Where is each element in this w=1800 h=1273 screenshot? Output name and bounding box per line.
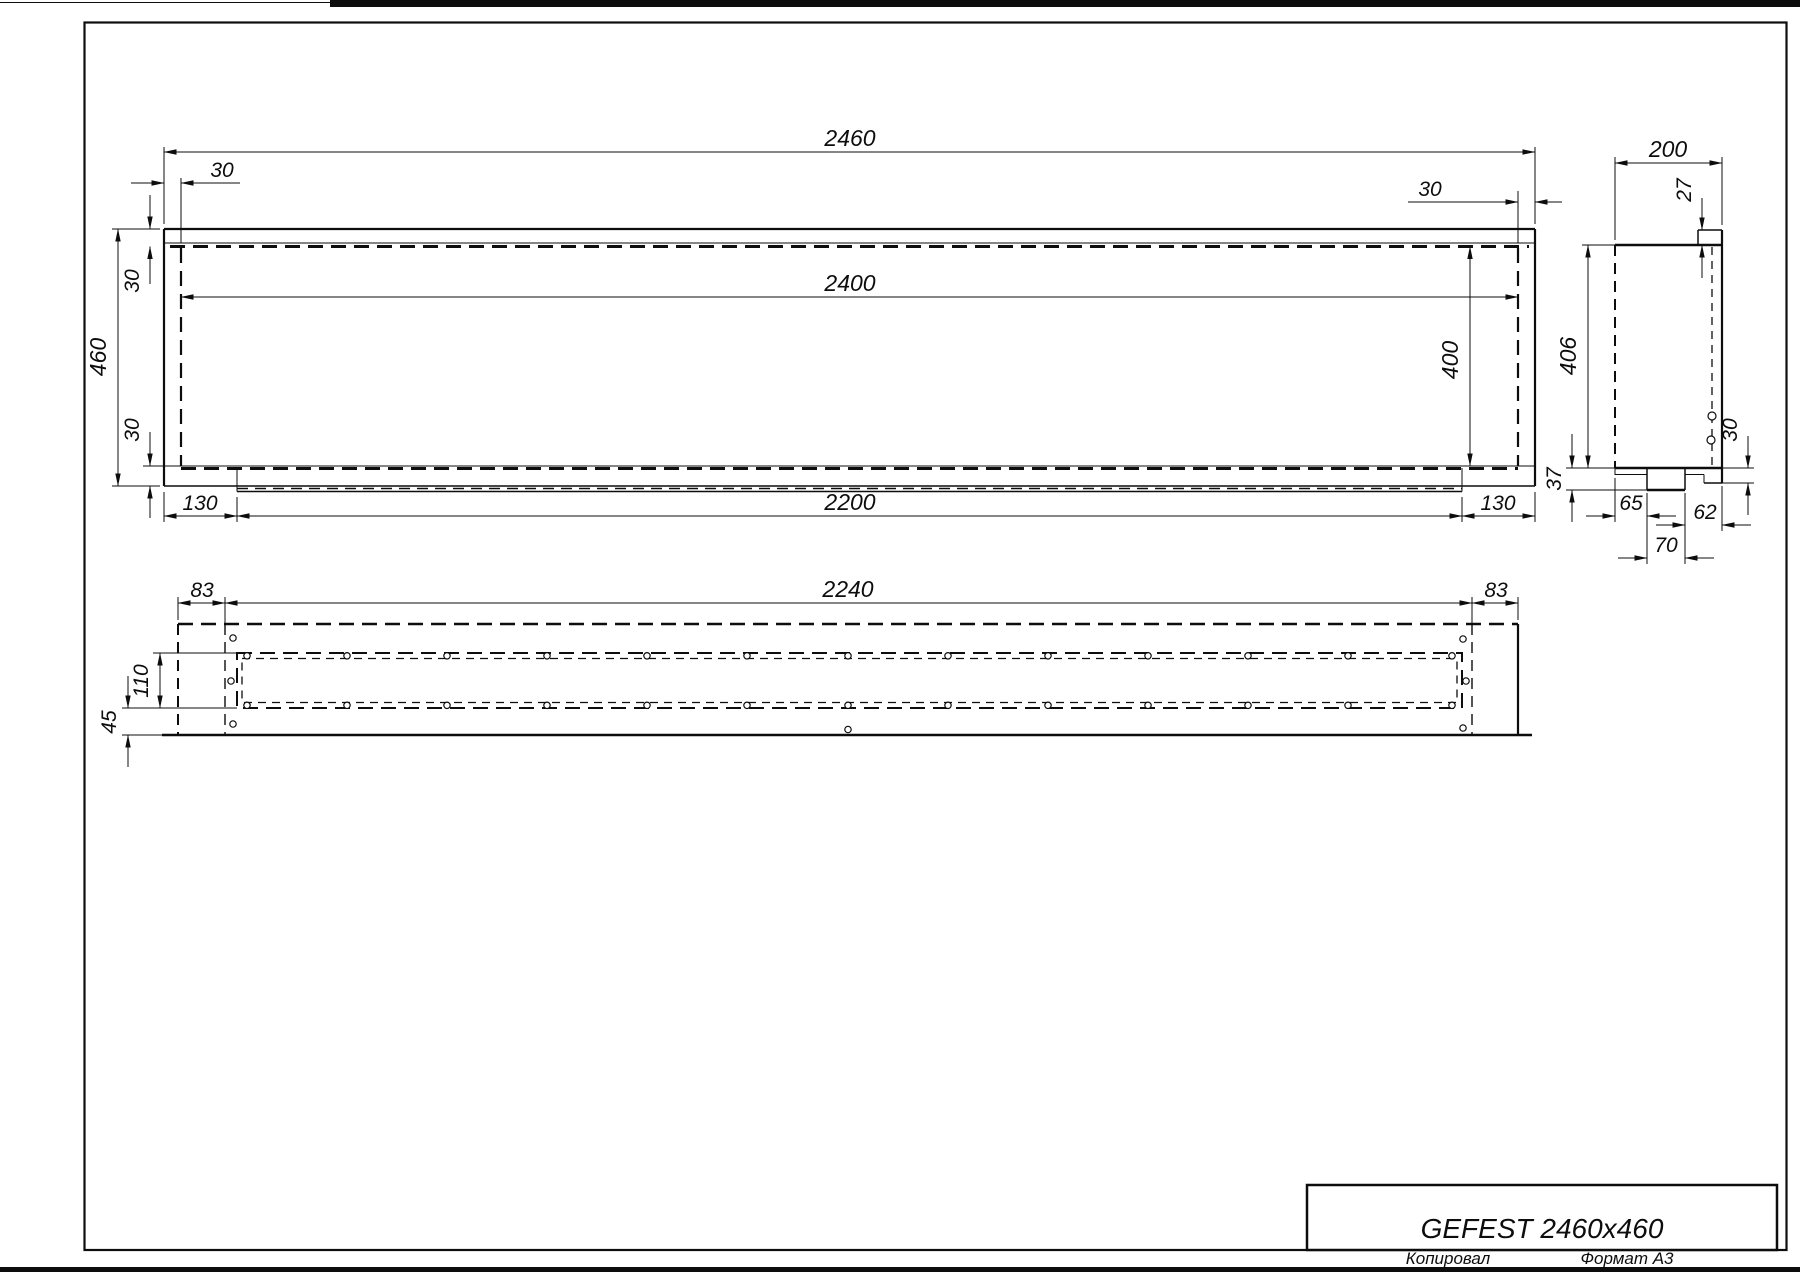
dim-bottom-left-margin: 83: [190, 579, 214, 602]
dim-front-tray-left: 130: [182, 492, 217, 515]
bottom-view-extensions: [122, 597, 1518, 735]
dim-side-foot-front: 65: [1619, 492, 1643, 515]
dim-front-overall-width: 2460: [823, 125, 875, 151]
dim-front-bottom-wall: 30: [121, 418, 144, 442]
front-view-contour: [164, 229, 1535, 492]
sheet-bottom-edge: [0, 1267, 1800, 1272]
copied-label: Копировал: [1406, 1249, 1491, 1268]
sheet-frame: [0, 0, 1800, 1272]
dim-side-depth: 200: [1648, 136, 1688, 162]
dim-side-inner-height: 406: [1555, 337, 1581, 376]
bottom-view-dimensions: 83 2240 83 110 45: [98, 576, 1518, 767]
dim-front-right-wall: 30: [1418, 178, 1442, 201]
dim-front-tray-length: 2200: [823, 489, 875, 515]
front-view-dimensions: 2460 30 30 2400 460 30 30 400 130 2200 1…: [85, 125, 1562, 518]
flange-mounting-holes: [228, 635, 1469, 733]
dim-side-foot-back: 62: [1693, 501, 1717, 524]
dim-front-opening-height: 400: [1437, 341, 1463, 380]
dim-front-opening-width: 2400: [823, 270, 875, 296]
drawing-frame: [85, 23, 1787, 1251]
burner-slot-outer: [237, 653, 1462, 708]
dim-bottom-right-margin: 83: [1484, 579, 1508, 602]
dim-bottom-slot-width: 110: [130, 664, 153, 698]
title-block: GEFEST 2460x460: [1307, 1185, 1777, 1250]
dim-side-glass-lip: 27: [1673, 177, 1696, 203]
sheet-footer: Копировал Формат А3: [1406, 1249, 1674, 1268]
dim-side-lip-height: 30: [1719, 418, 1742, 442]
side-view-contour: [1615, 230, 1722, 490]
dim-front-left-wall: 30: [210, 159, 234, 182]
sheet-top-edge: [330, 0, 1800, 7]
dim-front-top-wall: 30: [121, 269, 144, 293]
slot-screw-holes: [244, 653, 1455, 709]
format-label: Формат А3: [1580, 1249, 1674, 1268]
burner-slot-inner: [242, 659, 1457, 703]
drawing-canvas: 2460 30 30 2400 460 30 30 400 130 2200 1…: [0, 0, 1800, 1273]
dim-bottom-front-margin: 45: [98, 710, 121, 734]
side-hole-bottom: [1707, 436, 1715, 444]
dim-side-notch-width: 70: [1654, 534, 1678, 557]
dim-bottom-slot-length: 2240: [821, 576, 873, 602]
dim-side-base-height: 37: [1543, 466, 1566, 491]
bottom-view-contour: [162, 624, 1532, 735]
dim-front-overall-height: 460: [85, 338, 111, 377]
side-view-extensions: [1566, 157, 1754, 564]
drawing-sheet: 2460 30 30 2400 460 30 30 400 130 2200 1…: [0, 0, 1800, 1273]
title-block-model: GEFEST 2460x460: [1421, 1213, 1664, 1244]
side-hole-top: [1708, 412, 1716, 420]
dim-front-tray-right: 130: [1480, 492, 1515, 515]
